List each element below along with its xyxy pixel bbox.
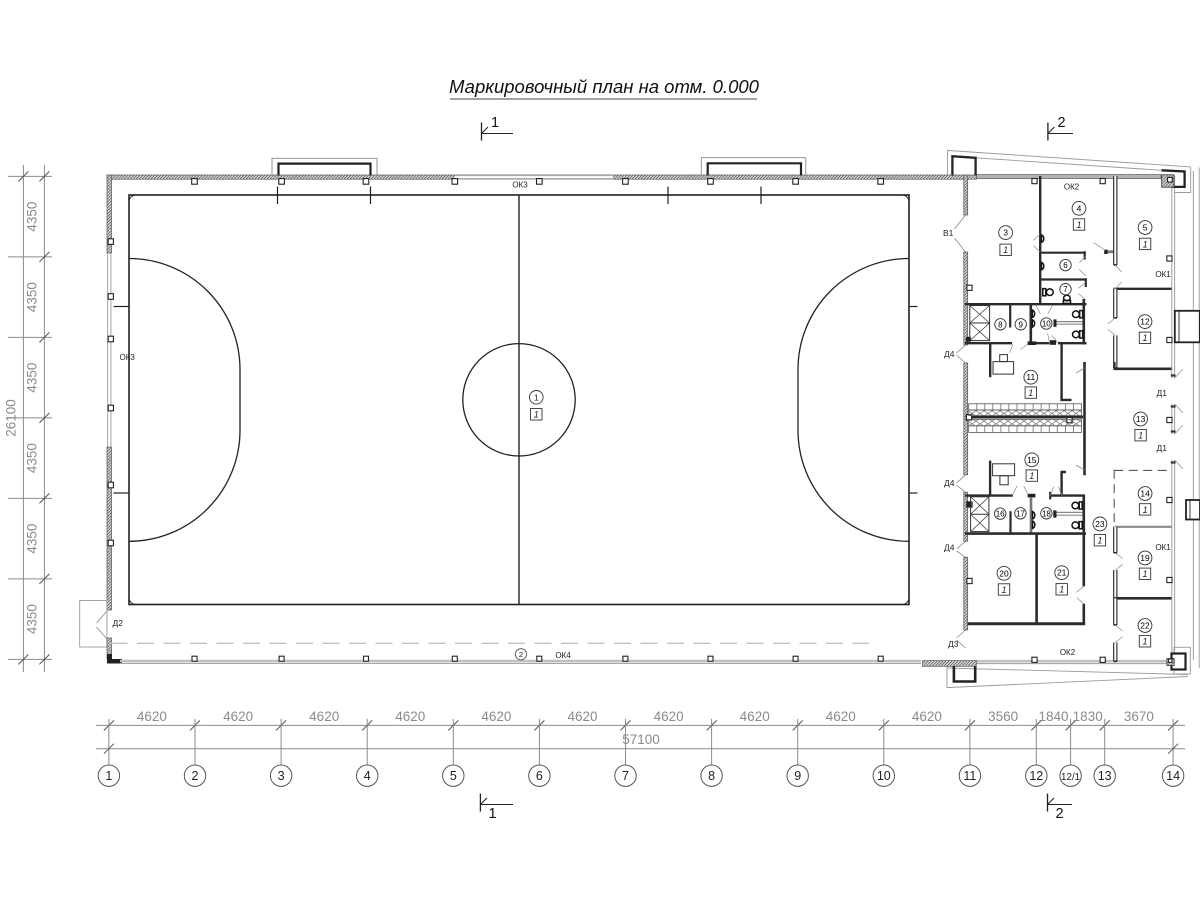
svg-text:14: 14 bbox=[1140, 489, 1150, 499]
svg-text:23: 23 bbox=[1095, 519, 1105, 529]
svg-text:4350: 4350 bbox=[25, 524, 40, 554]
svg-text:2: 2 bbox=[192, 769, 199, 783]
svg-text:ОК2: ОК2 bbox=[1060, 648, 1076, 657]
svg-text:ОК4: ОК4 bbox=[555, 651, 571, 660]
svg-text:1: 1 bbox=[1028, 388, 1033, 398]
svg-text:6: 6 bbox=[536, 769, 543, 783]
svg-text:9: 9 bbox=[1018, 320, 1023, 329]
svg-text:12: 12 bbox=[1029, 769, 1043, 783]
svg-text:11: 11 bbox=[1026, 372, 1035, 382]
svg-text:26100: 26100 bbox=[4, 399, 19, 437]
svg-text:4350: 4350 bbox=[25, 202, 40, 232]
svg-text:1830: 1830 bbox=[1073, 709, 1103, 724]
svg-text:1840: 1840 bbox=[1038, 709, 1068, 724]
svg-text:13: 13 bbox=[1136, 414, 1146, 424]
svg-text:4620: 4620 bbox=[481, 709, 511, 724]
svg-text:7: 7 bbox=[1063, 285, 1068, 294]
svg-text:Д4: Д4 bbox=[944, 478, 955, 488]
svg-text:6: 6 bbox=[1063, 261, 1068, 270]
svg-text:2: 2 bbox=[519, 650, 523, 659]
svg-text:12/1: 12/1 bbox=[1061, 772, 1080, 783]
svg-text:4: 4 bbox=[1077, 203, 1082, 213]
svg-text:10: 10 bbox=[877, 769, 891, 783]
svg-text:4620: 4620 bbox=[223, 709, 253, 724]
svg-text:4: 4 bbox=[364, 769, 371, 783]
svg-text:1: 1 bbox=[534, 410, 539, 420]
svg-text:4620: 4620 bbox=[309, 709, 339, 724]
svg-text:11: 11 bbox=[963, 769, 976, 783]
svg-text:ОК2: ОК2 bbox=[1064, 183, 1080, 192]
svg-text:12: 12 bbox=[1140, 317, 1150, 327]
svg-text:14: 14 bbox=[1166, 769, 1180, 783]
svg-text:ОК1: ОК1 bbox=[1155, 543, 1171, 552]
svg-text:1: 1 bbox=[491, 115, 499, 131]
svg-text:1: 1 bbox=[1138, 431, 1143, 441]
svg-text:15: 15 bbox=[1027, 455, 1037, 465]
svg-text:4350: 4350 bbox=[25, 363, 40, 393]
svg-text:4620: 4620 bbox=[912, 709, 942, 724]
svg-text:ОК3: ОК3 bbox=[120, 353, 136, 362]
svg-text:1: 1 bbox=[1097, 536, 1102, 546]
svg-text:В1: В1 bbox=[943, 228, 954, 238]
svg-text:22: 22 bbox=[1140, 621, 1150, 631]
svg-text:3670: 3670 bbox=[1124, 709, 1154, 724]
svg-text:1: 1 bbox=[1076, 220, 1081, 230]
svg-text:9: 9 bbox=[794, 769, 801, 783]
svg-text:1: 1 bbox=[534, 393, 539, 403]
svg-text:3: 3 bbox=[278, 769, 285, 783]
svg-text:3560: 3560 bbox=[988, 709, 1018, 724]
svg-text:1: 1 bbox=[1029, 471, 1034, 481]
svg-text:Д3: Д3 bbox=[948, 639, 959, 649]
svg-text:21: 21 bbox=[1057, 568, 1067, 578]
svg-text:Д4: Д4 bbox=[944, 543, 955, 553]
svg-text:57100: 57100 bbox=[622, 732, 660, 747]
svg-text:4620: 4620 bbox=[137, 709, 167, 724]
svg-text:4620: 4620 bbox=[395, 709, 425, 724]
svg-text:4620: 4620 bbox=[740, 709, 770, 724]
svg-text:8: 8 bbox=[998, 320, 1003, 329]
svg-text:13: 13 bbox=[1098, 769, 1112, 783]
svg-text:10: 10 bbox=[1042, 320, 1051, 329]
svg-text:ОК3: ОК3 bbox=[512, 181, 528, 190]
svg-text:1: 1 bbox=[1059, 585, 1064, 595]
svg-text:1: 1 bbox=[1142, 637, 1147, 647]
svg-text:1: 1 bbox=[105, 769, 112, 783]
svg-text:4620: 4620 bbox=[826, 709, 856, 724]
svg-text:3: 3 bbox=[1003, 228, 1008, 238]
svg-text:1: 1 bbox=[1003, 245, 1008, 255]
svg-text:4350: 4350 bbox=[25, 604, 40, 634]
svg-text:5: 5 bbox=[1143, 223, 1148, 233]
svg-text:Д1: Д1 bbox=[1157, 388, 1168, 398]
svg-text:5: 5 bbox=[450, 769, 457, 783]
svg-text:1: 1 bbox=[488, 806, 496, 822]
svg-text:17: 17 bbox=[1016, 509, 1025, 518]
svg-text:2: 2 bbox=[1055, 806, 1063, 822]
svg-text:Д2: Д2 bbox=[113, 618, 124, 628]
svg-text:Маркировочный план на отм. 0.0: Маркировочный план на отм. 0.000 bbox=[449, 76, 760, 97]
svg-text:4620: 4620 bbox=[567, 709, 597, 724]
svg-text:7: 7 bbox=[622, 769, 629, 783]
svg-text:Д1: Д1 bbox=[1157, 443, 1168, 453]
svg-text:1: 1 bbox=[1143, 505, 1148, 515]
svg-text:20: 20 bbox=[999, 568, 1009, 578]
svg-text:Д4: Д4 bbox=[944, 349, 955, 359]
svg-text:18: 18 bbox=[1042, 509, 1051, 518]
svg-text:4620: 4620 bbox=[654, 709, 684, 724]
svg-text:8: 8 bbox=[708, 769, 715, 783]
svg-text:4350: 4350 bbox=[25, 282, 40, 312]
svg-text:1: 1 bbox=[1142, 333, 1147, 343]
svg-text:16: 16 bbox=[996, 510, 1005, 519]
svg-text:1: 1 bbox=[1142, 569, 1147, 579]
svg-text:1: 1 bbox=[1001, 585, 1006, 595]
svg-text:2: 2 bbox=[1057, 115, 1065, 131]
svg-text:1: 1 bbox=[1143, 239, 1148, 249]
svg-text:19: 19 bbox=[1140, 553, 1150, 563]
svg-text:ОК1: ОК1 bbox=[1155, 270, 1171, 279]
svg-text:4350: 4350 bbox=[25, 443, 40, 473]
